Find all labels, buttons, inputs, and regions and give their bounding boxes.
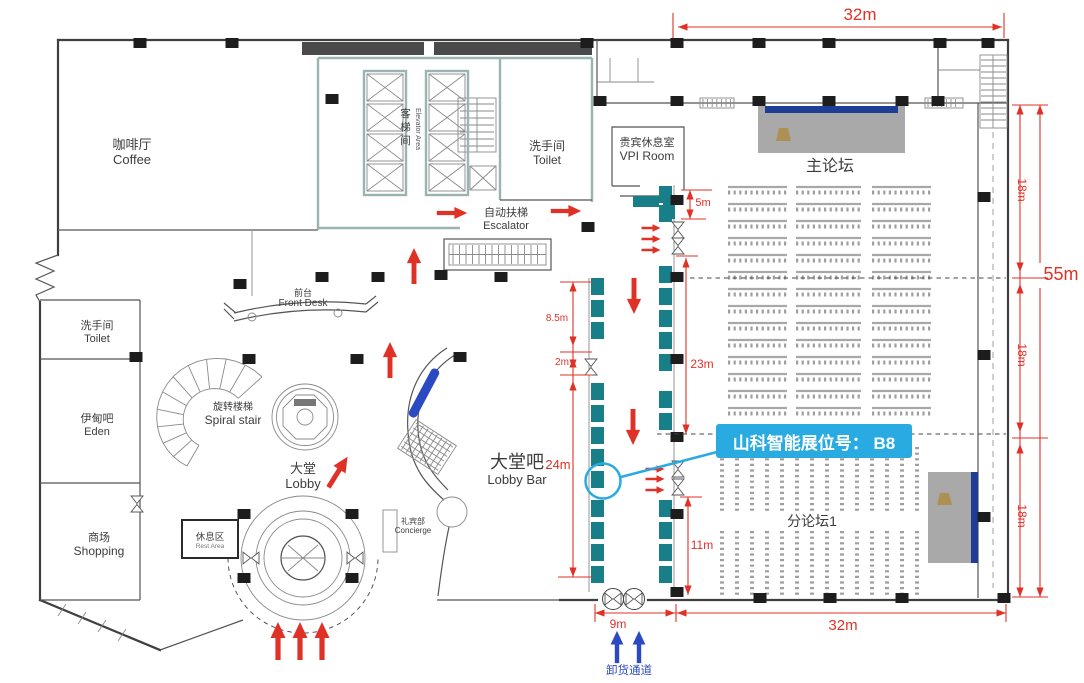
room-label-sub-forum: 分论坛1 [787,513,837,529]
room-label-escalator: 自动扶梯Escalator [483,207,529,232]
main-forum-seating [728,187,931,414]
elevator-bank [364,71,496,195]
floor-plan-drawing [0,0,1084,683]
dim-2m: 2m [555,357,569,368]
stair-top-right [980,55,1007,128]
dim-11m: 11m [691,538,713,552]
promenade-curve [398,348,467,596]
main-forum-stage [758,106,905,153]
stair-core [458,98,496,152]
room-label-toilet-left: 洗手间Toilet [81,320,114,345]
sub-forum-stage [928,472,978,563]
room-label-front-desk: 前台Front Desk [279,288,328,310]
floor-plan: 咖啡厅Coffee 客梯间Elevator Area 洗手间Toilet 贵宾休… [0,0,1084,683]
room-label-lobby: 大堂Lobby [285,462,320,492]
dim-8-5m: 8.5m [546,313,568,324]
dim-23m: 23m [690,357,713,371]
room-label-main-forum: 主论坛 [806,158,854,176]
octagon-feature [272,384,338,450]
dim-bottom-32m: 32m [828,617,857,634]
room-label-elevator-area: 客梯间Elevator Area [398,108,421,150]
room-label-vip: 贵宾休息室VPI Room [620,137,675,163]
callout-leader [586,452,718,499]
dim-right-55m: 55m [1043,264,1078,285]
exhibition-booths [591,186,675,583]
room-label-toilet-top: 洗手间Toilet [529,140,565,168]
room-label-eden: 伊甸吧Eden [81,413,114,438]
dim-right-18m-3: 18m [1015,504,1029,527]
dim-5m: 5m [695,197,710,209]
room-label-spiral-stair: 旋转楼梯Spiral stair [205,402,262,427]
dim-24m: 24m [545,457,570,472]
room-label-coffee: 咖啡厅Coffee [112,138,151,168]
booth-callout: 山科智能展位号： B8 [716,424,912,458]
dim-right-18m-1: 18m [1015,178,1029,201]
room-label-lobby-bar: 大堂吧Lobby Bar [487,452,546,488]
dim-top-32m: 32m [843,5,876,25]
room-label-shopping: 商场Shopping [74,532,125,558]
rest-area-box: 休息区Rest Area [181,519,239,559]
unloading-channel-label: 卸货通道 [606,662,652,678]
room-label-concierge: 礼宾部Concierge [395,517,431,535]
dim-right-18m-2: 18m [1015,343,1029,366]
dim-9m: 9m [610,617,627,631]
